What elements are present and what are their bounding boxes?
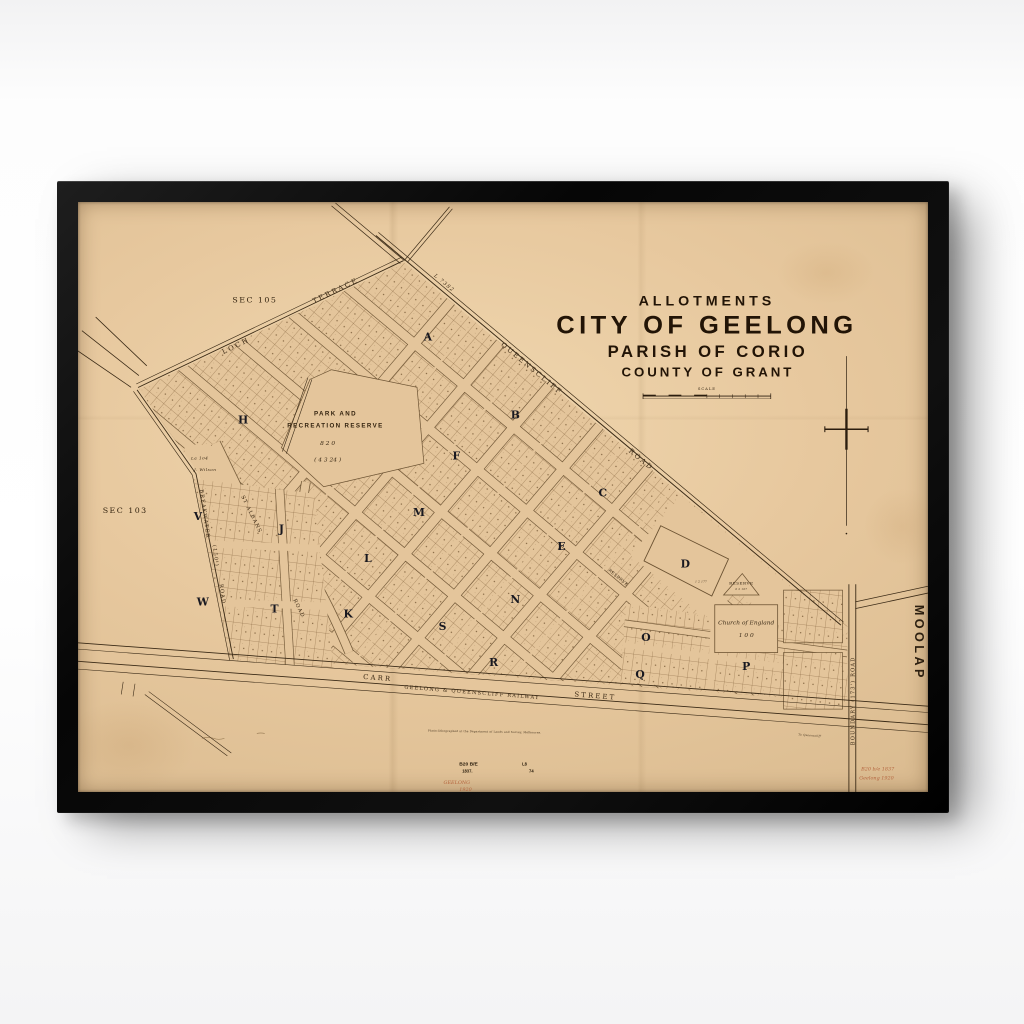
label-park-reserve-line2: RECREATION RESERVE	[287, 422, 383, 429]
label-sec-103: SEC 103	[103, 506, 148, 515]
label-park-reserve-area1: 8 2 0	[320, 441, 335, 447]
label-block-l: L	[364, 552, 372, 565]
label-block-m: M	[413, 506, 425, 519]
label-locality-moolap: MOOLAP	[912, 605, 927, 681]
label-stamp-74: 74	[529, 769, 534, 774]
map-paper: ALLOTMENTSCITY OF GEELONGPARISH OF CORIO…	[78, 202, 928, 792]
label-lot-la104: La 104	[190, 455, 208, 460]
label-block-r: R	[489, 656, 498, 669]
label-reserve-triangle-area: 0 2 107	[735, 587, 747, 591]
label-park-reserve-area2: ( 4 3 24 )	[314, 456, 342, 463]
label-title-county-of-grant: COUNTY OF GRANT	[621, 365, 794, 380]
label-block-h: H	[238, 413, 248, 426]
picture-frame: ALLOTMENTSCITY OF GEELONGPARISH OF CORIO…	[57, 181, 949, 813]
label-to-queenscliff: To Queenscliff	[798, 732, 822, 738]
label-lot-j-wilson: J. Wilson	[193, 467, 216, 472]
label-block-d: D	[681, 558, 690, 571]
label-street-carr-street: STREET	[574, 690, 617, 701]
label-block-t: T	[271, 603, 279, 616]
label-block-b: B	[511, 409, 520, 422]
label-block-o: O	[641, 631, 650, 644]
label-scale-label: SCALE	[698, 387, 716, 391]
label-fine-print: Photo-lithographed at the Department of …	[428, 729, 542, 735]
label-block-c: C	[598, 487, 607, 500]
label-block-f: F	[452, 449, 460, 462]
label-reserve-triangle: RESERVE	[729, 580, 753, 585]
label-red-note-right2: Geelong 1920	[859, 775, 894, 781]
label-title-parish-of-corio: PARISH OF CORIO	[608, 342, 809, 361]
allotment-grid	[78, 202, 864, 792]
church-of-england-block	[715, 605, 778, 653]
label-park-reserve-line1: PARK AND	[314, 411, 357, 418]
label-sec-105: SEC 105	[232, 295, 277, 304]
label-block-k: K	[344, 607, 354, 620]
label-title-city-of-geelong: CITY OF GEELONG	[556, 312, 857, 340]
label-red-note-geelong: GEELONG	[444, 780, 471, 786]
label-block-n: N	[510, 593, 520, 606]
label-church-of-england: Church of England	[718, 620, 774, 626]
label-block-s: S	[439, 620, 447, 633]
label-d-block-area: 1 2 177	[695, 579, 707, 583]
scale-bar	[643, 393, 771, 399]
meridian-cross	[825, 356, 868, 534]
label-block-q: Q	[635, 668, 644, 681]
label-church-area: 1 0 0	[739, 633, 754, 639]
label-street-carr: CARR	[363, 673, 393, 683]
page-background: ALLOTMENTSCITY OF GEELONGPARISH OF CORIO…	[0, 0, 1024, 1024]
label-block-j: J	[278, 523, 284, 536]
label-red-note-right1: B20 b/e 1837	[860, 767, 895, 773]
label-stamp-l8: L8	[522, 762, 528, 767]
label-stamp-year: 1837.	[462, 769, 472, 774]
label-red-note-year: 1920	[459, 787, 471, 792]
label-block-w: W	[196, 596, 210, 609]
geelong-allotment-map: ALLOTMENTSCITY OF GEELONGPARISH OF CORIO…	[78, 202, 928, 792]
label-block-p: P	[742, 660, 750, 673]
label-block-e: E	[557, 540, 565, 553]
label-title-allotments: ALLOTMENTS	[639, 293, 776, 309]
label-block-a: A	[423, 331, 433, 344]
label-block-v: V	[193, 510, 203, 523]
label-street-boundary-road: BOUNDARY (173') ROAD	[849, 657, 856, 746]
label-stamp-plan-number: B20 B/E	[459, 762, 478, 768]
